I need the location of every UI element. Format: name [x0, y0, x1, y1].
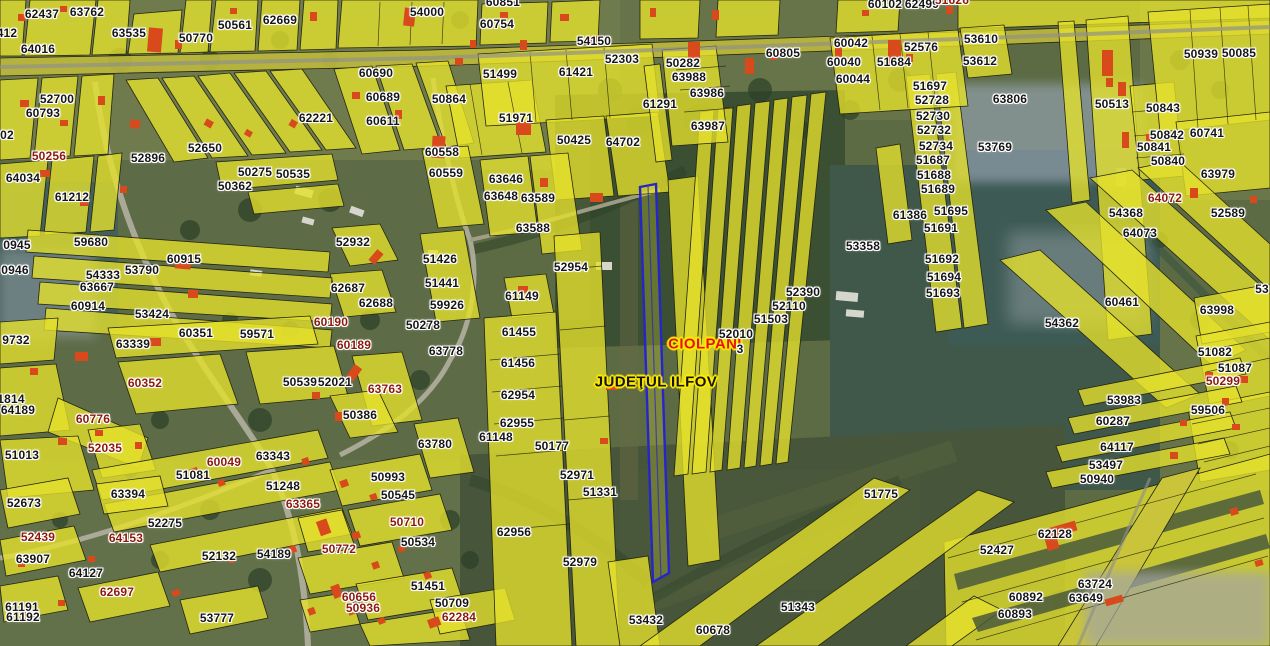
- parcel-label: 61455: [502, 325, 536, 339]
- parcel-label: 50299: [1206, 374, 1240, 388]
- parcel-label: 52589: [1211, 206, 1245, 220]
- parcel-label: 50362: [218, 179, 252, 193]
- parcel-label: 63998: [1200, 303, 1234, 317]
- parcel-label: 63588: [516, 221, 550, 235]
- parcel-label: 63589: [521, 191, 555, 205]
- parcel-label: 52427: [980, 543, 1014, 557]
- parcel-label: 60892: [1009, 590, 1043, 604]
- parcel-label: 51331: [583, 485, 617, 499]
- parcel-label: 51775: [864, 487, 898, 501]
- parcel-label: 63535: [112, 26, 146, 40]
- parcel-label: 51971: [499, 111, 533, 125]
- parcel-label: 50256: [32, 149, 66, 163]
- parcel-label: 50085: [1222, 46, 1256, 60]
- parcel-label: 61212: [55, 190, 89, 204]
- parcel-label: 63339: [116, 337, 150, 351]
- parcel-label: 51081: [176, 468, 210, 482]
- parcel-label: 60102: [868, 0, 902, 11]
- parcel-label: 64016: [21, 42, 55, 56]
- parcel-label: 59571: [240, 327, 274, 341]
- map-viewport[interactable]: CIOLPANI JUDEŢUL ILFOV 62437637624126401…: [0, 0, 1270, 646]
- parcel-label: 60351: [179, 326, 213, 340]
- parcel-label: 64073: [1123, 226, 1157, 240]
- parcel-label: 53432: [629, 613, 663, 627]
- parcel-label: 52954: [554, 260, 588, 274]
- parcel-label: 60611: [366, 114, 400, 128]
- parcel-label: 60042: [834, 36, 868, 50]
- parcel-label: 60287: [1096, 414, 1130, 428]
- parcel-label: 52971: [560, 468, 594, 482]
- parcel-label: 54362: [1045, 316, 1079, 330]
- parcel-label: 02: [0, 128, 14, 142]
- parcel-label: 63987: [691, 119, 725, 133]
- parcel-label: 63649: [1069, 591, 1103, 605]
- parcel-label: 50535: [276, 167, 310, 181]
- parcel-label: 60915: [167, 252, 201, 266]
- parcel-label: 51684: [877, 55, 911, 69]
- parcel-label: 50282: [666, 56, 700, 70]
- parcel-label: 51694: [927, 270, 961, 284]
- parcel-label: 62128: [1038, 527, 1072, 541]
- parcel-label: 51087: [1218, 361, 1252, 375]
- parcel-label: 51697: [913, 79, 947, 93]
- parcel-label: 64117: [1100, 440, 1134, 454]
- parcel-label: 60689: [366, 90, 400, 104]
- parcel-label: 50561: [218, 18, 252, 32]
- parcel-label: 50936: [346, 601, 380, 615]
- parcel-label: 60190: [314, 315, 348, 329]
- parcel-label: 61291: [643, 97, 677, 111]
- parcel-label: 62697: [100, 585, 134, 599]
- parcel-label: 62669: [263, 13, 297, 27]
- parcel-label: 60461: [1105, 295, 1139, 309]
- parcel-label: 50386: [343, 408, 377, 422]
- parcel-label: 52110: [772, 299, 806, 313]
- parcel-label: 62954: [501, 388, 535, 402]
- parcel-label: 53610: [964, 32, 998, 46]
- parcel-label: 52576: [904, 40, 938, 54]
- parcel-label: 50534: [401, 535, 435, 549]
- parcel-label: 61386: [893, 208, 927, 222]
- parcel-label: 61149: [505, 289, 539, 303]
- parcel-label: 52132: [202, 549, 236, 563]
- parcel-label: 63394: [111, 487, 145, 501]
- parcel-label: 50709: [435, 596, 469, 610]
- parcel-label: 51343: [781, 600, 815, 614]
- parcel-label: 54150: [577, 34, 611, 48]
- parcel-label: 50864: [432, 92, 466, 106]
- parcel-label: 51693: [926, 286, 960, 300]
- parcel-label: 50772: [322, 542, 356, 556]
- parcel-label: 63780: [418, 437, 452, 451]
- parcel-label: 3: [737, 342, 744, 356]
- parcel-label: 50539: [283, 375, 317, 389]
- parcel-label: 60558: [425, 145, 459, 159]
- parcel-label: 52932: [336, 235, 370, 249]
- parcel-label: 50940: [1080, 472, 1114, 486]
- parcel-label: 63907: [16, 552, 50, 566]
- parcel-label: 63646: [489, 172, 523, 186]
- parcel-label: 52390: [786, 285, 820, 299]
- parcel-label: 50513: [1095, 97, 1129, 111]
- parcel-label: 50843: [1146, 101, 1180, 115]
- parcel-label: 50841: [1137, 140, 1171, 154]
- parcel-label: 52700: [40, 92, 74, 106]
- parcel-label: 50425: [557, 133, 591, 147]
- parcel-label: 60040: [827, 55, 861, 69]
- parcel-label: 50939: [1184, 47, 1218, 61]
- parcel-label: 51503: [754, 312, 788, 326]
- parcel-label: 63979: [1201, 167, 1235, 181]
- parcel-label: 50545: [381, 488, 415, 502]
- parcel-label: 52021: [318, 375, 352, 389]
- parcel-label: 52728: [915, 93, 949, 107]
- parcel-label: 63778: [429, 344, 463, 358]
- parcel-label: 60678: [696, 623, 730, 637]
- parcel-label: 53612: [963, 54, 997, 68]
- parcel-label: 62688: [359, 296, 393, 310]
- parcel-label: 61148: [479, 430, 513, 444]
- parcel-label: 54189: [257, 547, 291, 561]
- parcel-label: 52979: [563, 555, 597, 569]
- parcel-label: 50710: [390, 515, 424, 529]
- parcel-label: 51687: [916, 153, 950, 167]
- parcel-label: 54000: [410, 5, 444, 19]
- parcel-label: 62955: [500, 416, 534, 430]
- parcel-label: 54368: [1109, 206, 1143, 220]
- parcel-label: 52732: [917, 123, 951, 137]
- parcel-label: 64189: [1, 403, 35, 417]
- parcel-label: 52730: [916, 109, 950, 123]
- parcel-label: 63648: [484, 189, 518, 203]
- parcel-label: 412: [0, 26, 17, 40]
- parcel-label: 59680: [74, 235, 108, 249]
- parcel-label: 59926: [430, 298, 464, 312]
- parcel-label: 60805: [766, 46, 800, 60]
- parcel-label: 52303: [605, 52, 639, 66]
- parcel-label: 53358: [846, 239, 880, 253]
- parcel-label: 61421: [559, 65, 593, 79]
- parcel-label: 63724: [1078, 577, 1112, 591]
- parcel-label: 52734: [919, 139, 953, 153]
- parcel-label: 51451: [411, 579, 445, 593]
- parcel-label: 60893: [998, 607, 1032, 621]
- parcel-label: 52896: [131, 151, 165, 165]
- parcel-label: 53497: [1089, 458, 1123, 472]
- parcel-label: 61456: [501, 356, 535, 370]
- parcel-label: 51691: [924, 221, 958, 235]
- parcel-label: 62956: [497, 525, 531, 539]
- parcel-label: 63988: [672, 70, 706, 84]
- parcel-label: 64702: [606, 135, 640, 149]
- parcel-label: 64127: [69, 566, 103, 580]
- parcel-label: 50840: [1151, 154, 1185, 168]
- parcel-label: 0946: [1, 263, 29, 277]
- parcel-label: 60754: [480, 17, 514, 31]
- label-layer: CIOLPANI JUDEŢUL ILFOV 62437637624126401…: [0, 0, 1270, 646]
- parcel-label: 62284: [442, 610, 476, 624]
- parcel-label: 60690: [359, 66, 393, 80]
- parcel-label: 60559: [429, 166, 463, 180]
- parcel-label: 51013: [5, 448, 39, 462]
- parcel-label: 51688: [917, 168, 951, 182]
- parcel-label: 62437: [25, 7, 59, 21]
- parcel-label: 63365: [286, 497, 320, 511]
- parcel-label: 60741: [1190, 126, 1224, 140]
- parcel-label: 51626: [935, 0, 969, 7]
- parcel-label: 53983: [1107, 393, 1141, 407]
- parcel-label: 9732: [2, 333, 30, 347]
- parcel-label: 60189: [337, 338, 371, 352]
- parcel-label: 50993: [371, 470, 405, 484]
- parcel-label: 60049: [207, 455, 241, 469]
- parcel-label: 63806: [993, 92, 1027, 106]
- parcel-label: 51248: [266, 479, 300, 493]
- parcel-label: 63986: [690, 86, 724, 100]
- parcel-label: 53777: [200, 611, 234, 625]
- parcel-label: 51082: [1198, 345, 1232, 359]
- parcel-label: 51441: [425, 276, 459, 290]
- parcel-label: 51695: [934, 204, 968, 218]
- parcel-label: 63763: [368, 382, 402, 396]
- parcel-label: 60776: [76, 412, 110, 426]
- parcel-label: 62687: [331, 281, 365, 295]
- parcel-label: 51689: [921, 182, 955, 196]
- parcel-label: 53790: [125, 263, 159, 277]
- parcel-label: 52010: [719, 327, 753, 341]
- parcel-label: 63343: [256, 449, 290, 463]
- parcel-label: 51692: [925, 252, 959, 266]
- parcel-label: 62221: [299, 111, 333, 125]
- parcel-label: 51499: [483, 67, 517, 81]
- parcel-label: 64153: [109, 531, 143, 545]
- parcel-label: 53424: [135, 307, 169, 321]
- parcel-label: 50278: [406, 318, 440, 332]
- parcel-label: 60044: [836, 72, 870, 86]
- parcel-label: 52673: [7, 496, 41, 510]
- parcel-label: 60352: [128, 376, 162, 390]
- parcel-label: 60793: [26, 106, 60, 120]
- parcel-label: 59506: [1191, 403, 1225, 417]
- parcel-label: 0945: [3, 238, 31, 252]
- county-label: JUDEŢUL ILFOV: [595, 374, 717, 391]
- parcel-label: 52439: [21, 530, 55, 544]
- parcel-label: 60851: [486, 0, 520, 9]
- parcel-label: 63762: [70, 5, 104, 19]
- parcel-label: 60914: [71, 299, 105, 313]
- parcel-label: 50275: [238, 165, 272, 179]
- parcel-label: 52035: [88, 441, 122, 455]
- parcel-label: 64072: [1148, 191, 1182, 205]
- parcel-label: 53: [1255, 282, 1269, 296]
- parcel-label: 53769: [978, 140, 1012, 154]
- parcel-label: 52275: [148, 516, 182, 530]
- parcel-label: 51426: [423, 252, 457, 266]
- parcel-label: 61192: [6, 610, 40, 624]
- parcel-label: 52650: [188, 141, 222, 155]
- parcel-label: 63667: [80, 280, 114, 294]
- parcel-label: 64034: [6, 171, 40, 185]
- parcel-label: 50177: [535, 439, 569, 453]
- parcel-label: 50770: [179, 31, 213, 45]
